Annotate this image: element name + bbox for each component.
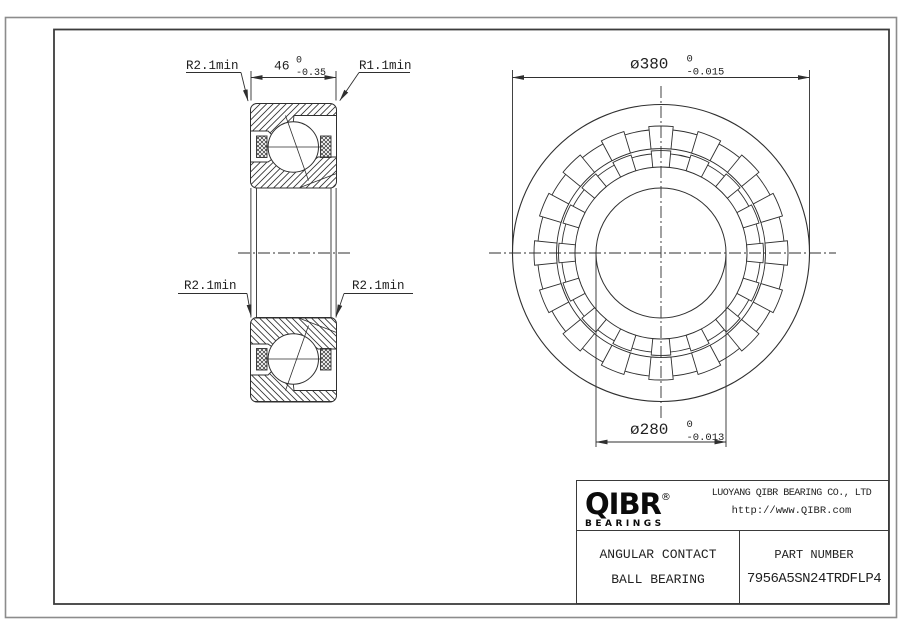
cage-block-bottom-left xyxy=(257,349,268,371)
product-line2: BALL BEARING xyxy=(611,572,705,587)
front-view xyxy=(489,86,836,421)
dim-width-value: 46 xyxy=(274,59,290,74)
dim-bore-tol-upper: 0 xyxy=(687,419,693,431)
dim-od-tol-upper: 0 xyxy=(687,54,693,66)
registered-mark-icon: ® xyxy=(661,492,671,503)
label-r-mid-right: R2.1min xyxy=(352,279,405,293)
cage-block-top-left xyxy=(257,136,268,158)
dim-bore-tol-lower: -0.013 xyxy=(687,432,725,444)
label-r-mid-left: R2.1min xyxy=(184,279,237,293)
engineering-drawing-page: 46 0 -0.35 R2.1min R1.1min R2.1min R2.1m… xyxy=(0,0,900,636)
part-number-label: PART NUMBER xyxy=(774,548,853,562)
brand-text: QIBR xyxy=(585,487,661,521)
dim-width-tol-upper: 0 xyxy=(296,56,302,67)
product-line1: ANGULAR CONTACT xyxy=(599,547,716,562)
dim-bore-value: ø280 xyxy=(630,421,668,439)
logo: QIBR® BEARINGS xyxy=(577,481,695,530)
brand-tagline: BEARINGS xyxy=(585,519,695,529)
cage-block-top-right xyxy=(321,136,332,158)
title-block-header-row: QIBR® BEARINGS LUOYANG QIBR BEARING CO.,… xyxy=(577,481,888,531)
brand-wordmark: QIBR® xyxy=(585,483,695,519)
part-number-value: 7956A5SN24TRDFLP4 xyxy=(747,571,881,587)
title-block: QIBR® BEARINGS LUOYANG QIBR BEARING CO.,… xyxy=(576,480,889,604)
product-type-cell: ANGULAR CONTACT BALL BEARING xyxy=(577,531,740,603)
company-name: LUOYANG QIBR BEARING CO., LTD xyxy=(695,488,888,499)
label-r-outer-right: R1.1min xyxy=(359,59,412,73)
label-r-outer-left: R2.1min xyxy=(186,59,239,73)
dim-width-tol-lower: -0.35 xyxy=(296,68,326,79)
title-block-body-row: ANGULAR CONTACT BALL BEARING PART NUMBER… xyxy=(577,531,888,603)
part-number-cell: PART NUMBER 7956A5SN24TRDFLP4 xyxy=(740,531,888,603)
cage-block-bottom-right xyxy=(321,349,332,371)
company-info: LUOYANG QIBR BEARING CO., LTD http://www… xyxy=(695,481,888,530)
section-view xyxy=(238,104,350,403)
dim-od-tol-lower: -0.015 xyxy=(687,67,725,79)
dim-od-value: ø380 xyxy=(630,56,668,74)
company-website: http://www.QIBR.com xyxy=(695,505,888,517)
